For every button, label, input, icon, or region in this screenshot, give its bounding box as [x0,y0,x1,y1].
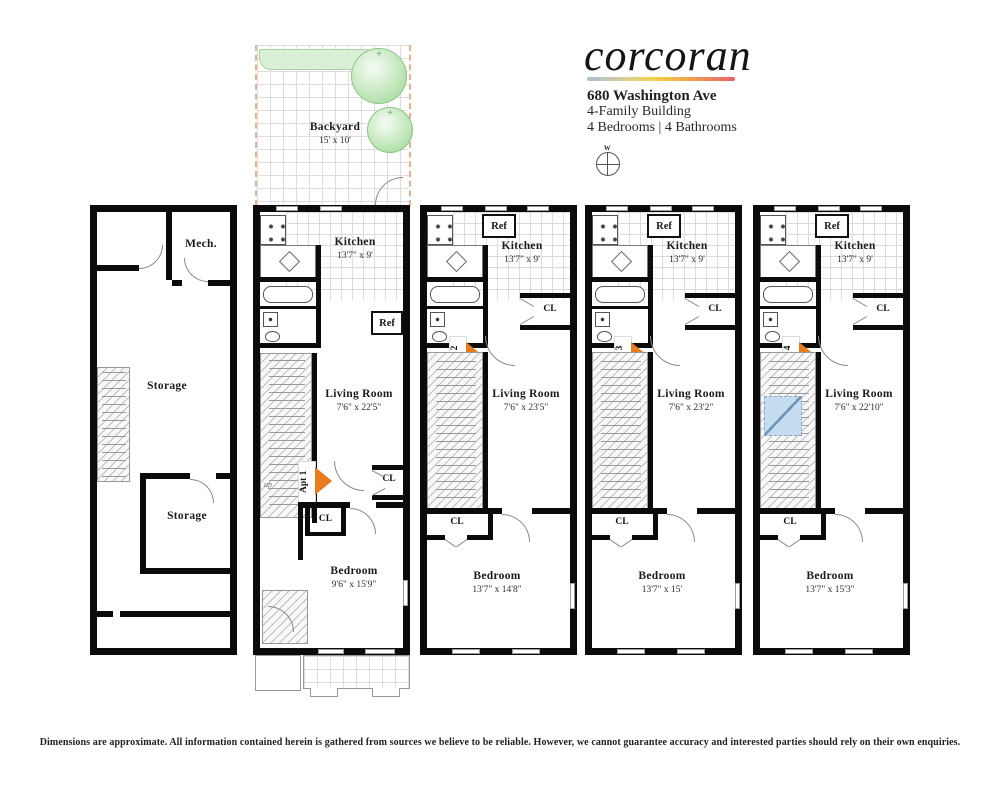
bedroom-label-block: Bedroom 13'7" x 14'8" [442,570,552,595]
toilet-icon [265,331,280,342]
living-room-dims: 7'6" x 23'5" [482,403,570,413]
wall [427,508,570,514]
wall [216,473,230,479]
bedroom-label: Bedroom [442,570,552,582]
wall [592,277,652,282]
living-room-label-block: Living Room 7'6" x 23'5" [482,388,570,413]
bedroom-label-block: Bedroom 13'7" x 15' [607,570,717,595]
living-room-label: Living Room [815,388,903,400]
kitchen-dims: 13'7" x 9' [642,255,732,265]
deck-step [372,688,400,697]
wall [208,280,230,286]
backyard-label: Backyard [297,121,373,133]
window [276,206,298,211]
closet-door-line [853,316,867,325]
window [527,206,549,211]
wall [427,535,445,540]
compass-horizontal-line [597,164,619,165]
door-arc [190,479,214,503]
bathtub-icon [763,286,813,303]
wall [467,535,493,540]
bathroom-sink-icon [430,312,445,327]
toilet-icon [765,331,780,342]
living-room-label-block: Living Room 7'6" x 22'5" [315,388,403,413]
stove-icon [592,215,618,245]
toilet-icon [432,331,447,342]
tree-icon: + [351,48,407,104]
wall [97,611,113,617]
closet-door-line [621,539,632,547]
window [512,649,540,654]
mech-room-label: Mech. [172,238,230,250]
window [785,649,813,654]
wall [483,352,488,512]
door-opening [350,502,376,508]
wall [427,306,485,309]
window [677,649,705,654]
window [320,206,342,211]
door-arc [502,514,530,542]
bedroom-dims: 13'7" x 15' [607,585,717,595]
living-room-label-block: Living Room 7'6" x 23'2" [647,388,735,413]
living-room-label: Living Room [647,388,735,400]
closet-label: CL [535,304,565,314]
wall [372,495,403,500]
door-opening [502,508,532,514]
kitchen-label-block: Kitchen 13'7" x 9' [810,240,900,265]
refrigerator: Ref [815,214,849,238]
refrigerator: Ref [482,214,516,238]
window [860,206,882,211]
kitchen-label: Kitchen [477,240,567,252]
door-arc [184,258,208,282]
window [606,206,628,211]
wall [760,535,778,540]
window [903,583,908,609]
wall [853,293,903,298]
floorplan-apt-2: Ref Kitchen 13'7" x 9' CL Apt 2 Living R… [420,205,577,655]
closet-door-line [520,316,534,325]
window [441,206,463,211]
compass-vertical-line [607,153,608,175]
stair-treads [436,361,476,505]
bathroom-sink-icon [595,312,610,327]
wall [298,502,303,560]
wall [140,568,230,574]
bathroom-sink-icon [763,312,778,327]
wall [140,473,190,479]
bedroom-label-block: Bedroom 9'6" x 15'9" [308,565,400,590]
building-type: 4-Family Building [587,104,691,120]
door-arc [350,508,376,534]
stairs-up-label: up [264,480,272,489]
closet-label: CL [765,517,815,527]
wall [592,535,610,540]
logo-gradient-bar [587,77,735,81]
door-arc [650,336,680,366]
backyard-area: + + Backyard 15' x 10' [255,45,411,206]
listing-address: 680 Washington Ave [587,88,716,105]
skylight [764,396,802,436]
bathroom-sink-icon [263,312,278,327]
kitchen-label: Kitchen [810,240,900,252]
window [318,649,344,654]
wall [760,306,818,309]
window [570,583,575,609]
door-arc [485,336,515,366]
wall [97,265,139,271]
bedroom-label: Bedroom [775,570,885,582]
window [774,206,796,211]
stove-icon [427,215,453,245]
wall [260,343,321,348]
stove-icon [760,215,786,245]
door-arc [818,336,848,366]
bedroom-dims: 13'7" x 15'3" [775,585,885,595]
door-arc [139,245,163,269]
kitchen-dims: 13'7" x 9' [810,255,900,265]
window [617,649,645,654]
tree-icon: + [367,107,413,153]
storage-room-label: Storage [145,510,229,522]
disclaimer-text: Dimensions are approximate. All informat… [0,737,1000,748]
window [485,206,507,211]
living-room-dims: 7'6" x 23'2" [647,403,735,413]
wall [592,508,735,514]
compass-icon [596,152,620,176]
window [650,206,672,211]
apt-1-tag: Apt 1 [298,461,316,503]
closet-door-line [789,539,800,547]
refrigerator: Ref [647,214,681,238]
kitchen-label: Kitchen [310,236,400,248]
window [845,649,873,654]
window [365,649,395,654]
bedroom-label: Bedroom [607,570,717,582]
bedroom-dims: 13'7" x 14'8" [442,585,552,595]
closet-door-line [685,316,699,325]
closet-door-line [445,539,456,547]
wall [140,473,146,574]
apt-1-arrow-icon [315,467,332,495]
wall [685,293,735,298]
living-room-dims: 7'6" x 22'10" [815,403,903,413]
cellar-stairs [97,367,130,482]
closet-label: CL [700,304,730,314]
stair-treads [601,361,641,505]
bathtub-icon [595,286,645,303]
wall [372,465,403,470]
refrigerator: Ref [371,311,403,335]
window [692,206,714,211]
wall [685,325,735,330]
kitchen-label: Kitchen [642,240,732,252]
door-arc [835,514,863,542]
closet-door-line [610,539,621,547]
kitchen-dims: 13'7" x 9' [477,255,567,265]
wall [260,306,318,309]
front-stoop [255,655,301,691]
wall [760,277,820,282]
wall [648,352,653,512]
window [403,580,408,606]
window [818,206,840,211]
door-opening [835,508,865,514]
rear-deck [303,655,410,689]
closet-label: CL [868,304,898,314]
storage-upper-label-block: Storage [122,380,212,392]
wall [800,535,826,540]
compass-west-label: w [604,142,611,152]
backyard-dims: 15' x 10' [297,136,373,146]
building-stairs [592,352,648,512]
toilet-icon [597,331,612,342]
floorplan-page: { "header": { "logo_text": "corcoran", "… [0,0,1000,785]
door-arc [667,514,695,542]
floorplan-apt-1: Kitchen 13'7" x 9' Ref up Living Room 7'… [253,205,410,655]
bedroom-label-block: Bedroom 13'7" x 15'3" [775,570,885,595]
mech-room-label-block: Mech. [172,238,230,250]
living-room-label: Living Room [482,388,570,400]
storage-lower-label-block: Storage [145,510,229,522]
rooms-summary: 4 Bedrooms | 4 Bathrooms [587,120,737,136]
door-arc [334,461,364,491]
bathtub-icon [263,286,313,303]
kitchen-dims: 13'7" x 9' [310,251,400,261]
wall [172,280,182,286]
closet-door-line [456,539,467,547]
closet-label: CL [597,517,647,527]
closet-label: CL [432,517,482,527]
stair-treads [102,372,126,478]
wall [816,352,821,512]
wall [520,293,570,298]
wall [120,611,230,617]
bedroom-label: Bedroom [308,565,400,577]
window [452,649,480,654]
floorplan-apt-4: Ref Kitchen 13'7" x 9' CL Apt 4 Living R… [753,205,910,655]
wall [760,508,903,514]
window [735,583,740,609]
kitchen-label-block: Kitchen 13'7" x 9' [642,240,732,265]
wall [520,325,570,330]
wall [632,535,658,540]
backyard-label-block: Backyard 15' x 10' [297,121,373,146]
bathtub-icon [430,286,480,303]
living-room-dims: 7'6" x 22'5" [315,403,403,413]
building-stairs [427,352,483,512]
living-room-label-block: Living Room 7'6" x 22'10" [815,388,903,413]
kitchen-label-block: Kitchen 13'7" x 9' [477,240,567,265]
wall [260,277,320,282]
door-opening [667,508,697,514]
living-room-label: Living Room [315,388,403,400]
wall [853,325,903,330]
deck-step [310,688,338,697]
closet-label: CL [310,514,341,524]
corcoran-logo: corcoran [584,30,752,81]
kitchen-label-block: Kitchen 13'7" x 9' [310,236,400,261]
wall [305,532,346,536]
wall [427,277,487,282]
closet-door-line [778,539,789,547]
wall [592,306,650,309]
storage-room-label: Storage [122,380,212,392]
stove-icon [260,215,286,245]
floorplan-apt-3: Ref Kitchen 13'7" x 9' CL Apt 3 Living R… [585,205,742,655]
floorplan-cellar: Mech. Storage Storage [90,205,237,655]
bedroom-dims: 9'6" x 15'9" [308,580,400,590]
